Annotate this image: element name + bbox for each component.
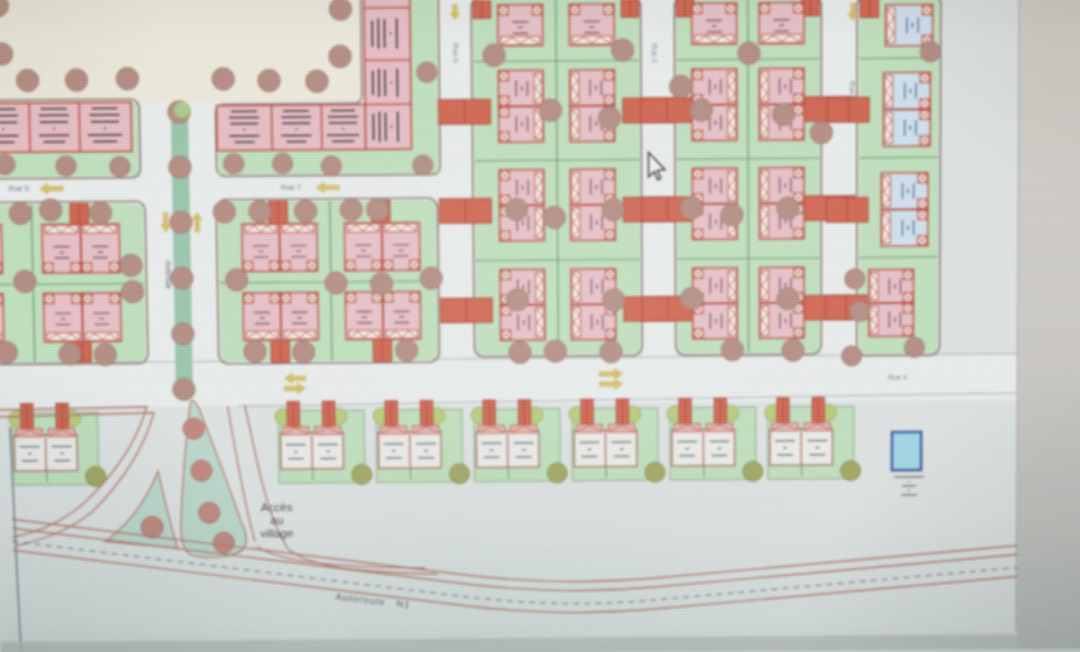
svg-text:Rue 4: Rue 4 xyxy=(888,374,907,382)
svg-text:Rue 3: Rue 3 xyxy=(848,81,856,100)
svg-text:Rue 5: Rue 5 xyxy=(9,184,29,193)
svg-text:Rue 7: Rue 7 xyxy=(281,183,301,192)
svg-text:village: village xyxy=(261,527,294,540)
svg-text:Avenue: Avenue xyxy=(163,260,174,289)
svg-text:Accès: Accès xyxy=(261,501,293,514)
svg-text:Rue 6: Rue 6 xyxy=(451,43,459,62)
svg-text:Rue 2: Rue 2 xyxy=(650,44,658,63)
svg-text:au: au xyxy=(270,514,283,527)
